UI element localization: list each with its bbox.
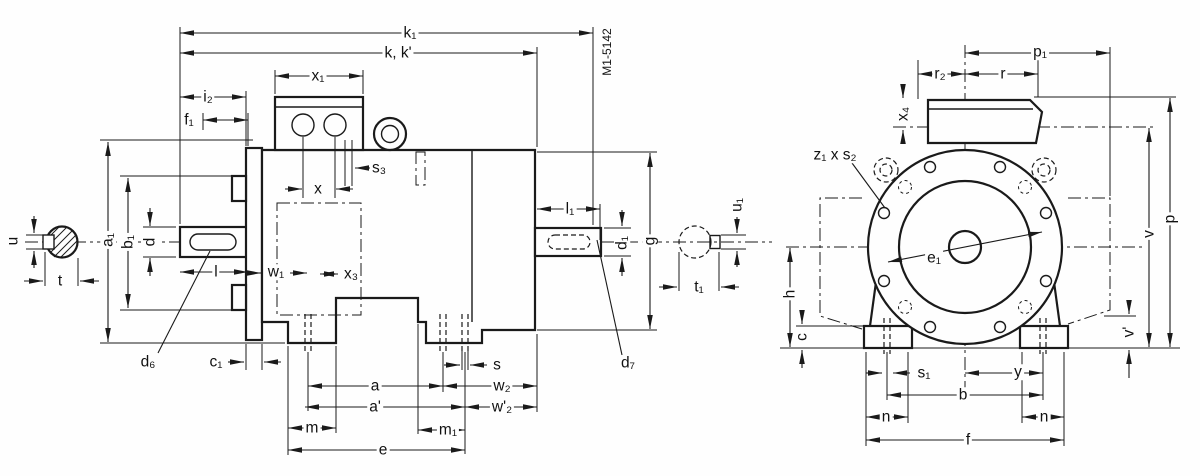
dim-label-w2: w₂ [491,378,512,394]
dim-label-t1: t₁ [692,279,706,295]
dim-label-i2: i₂ [201,89,214,105]
dim-label-v-prime: v' [1121,325,1137,340]
dim-label-d7: d₇ [619,355,637,371]
dim-label-r2: r₂ [932,66,947,82]
dim-label-x4: x₄ [895,105,911,123]
dim-label-k: k, k' [382,45,413,61]
dim-label-f: f [964,432,972,448]
dim-label-c1: c₁ [208,354,225,370]
dim-label-s1: s₁ [916,365,933,381]
dim-label-a1: a₁ [100,231,116,249]
dim-label-e: e [377,442,390,458]
dim-label-t: t [56,273,64,289]
dim-label-r: r [998,66,1007,82]
dim-label-e1: e₁ [925,250,943,266]
dim-label-k1: k₁ [402,25,419,41]
side-view-outline [43,97,720,343]
dim-label-x: x [312,181,324,197]
dim-label-w2-prime: w'₂ [490,399,514,415]
dim-label-c: c [794,331,810,343]
dim-label-s: s [491,357,503,373]
dim-label-u1: u₁ [729,196,745,214]
dim-label-b1: b₁ [120,233,136,251]
dim-label-x1: x₁ [310,68,327,84]
dim-label-f1: f₁ [182,112,196,128]
dim-label-z1-x-s2: z₁ x s₂ [811,147,858,163]
dim-label-s3: s₃ [370,160,388,176]
dim-label-v: v [1141,228,1157,240]
dim-label-x3: x₃ [342,266,360,282]
dim-label-a-prime: a' [367,399,383,415]
dim-label-n-left: n [880,409,893,425]
motor-dimension-drawing: k₁ k, k' M1-5142 x₁ i₂ f₁ s₃ x a₁ b₁ d u… [0,0,1200,476]
dim-label-d6: d₆ [139,354,158,370]
drawing-number: M1-5142 [601,26,613,77]
dim-label-l1: l₁ [564,201,577,217]
dim-label-b: b [957,387,970,403]
dim-label-m: m [304,420,321,436]
dim-label-d: d [142,236,158,249]
dim-label-m1: m₁ [437,422,459,438]
dim-label-u: u [5,235,21,248]
dim-label-y: y [1012,364,1024,380]
dim-label-d1: d₁ [614,234,630,252]
dim-label-a: a [369,378,382,394]
dim-label-l: l [212,264,219,280]
dim-label-p1: p₁ [1031,44,1049,60]
dim-label-n-right: n [1038,409,1051,425]
dim-label-h: h [782,288,798,301]
dim-label-g: g [642,235,658,248]
front-view-outline [780,100,1180,348]
dim-label-w1: w₁ [266,264,286,280]
dim-label-p: p [1162,213,1178,226]
